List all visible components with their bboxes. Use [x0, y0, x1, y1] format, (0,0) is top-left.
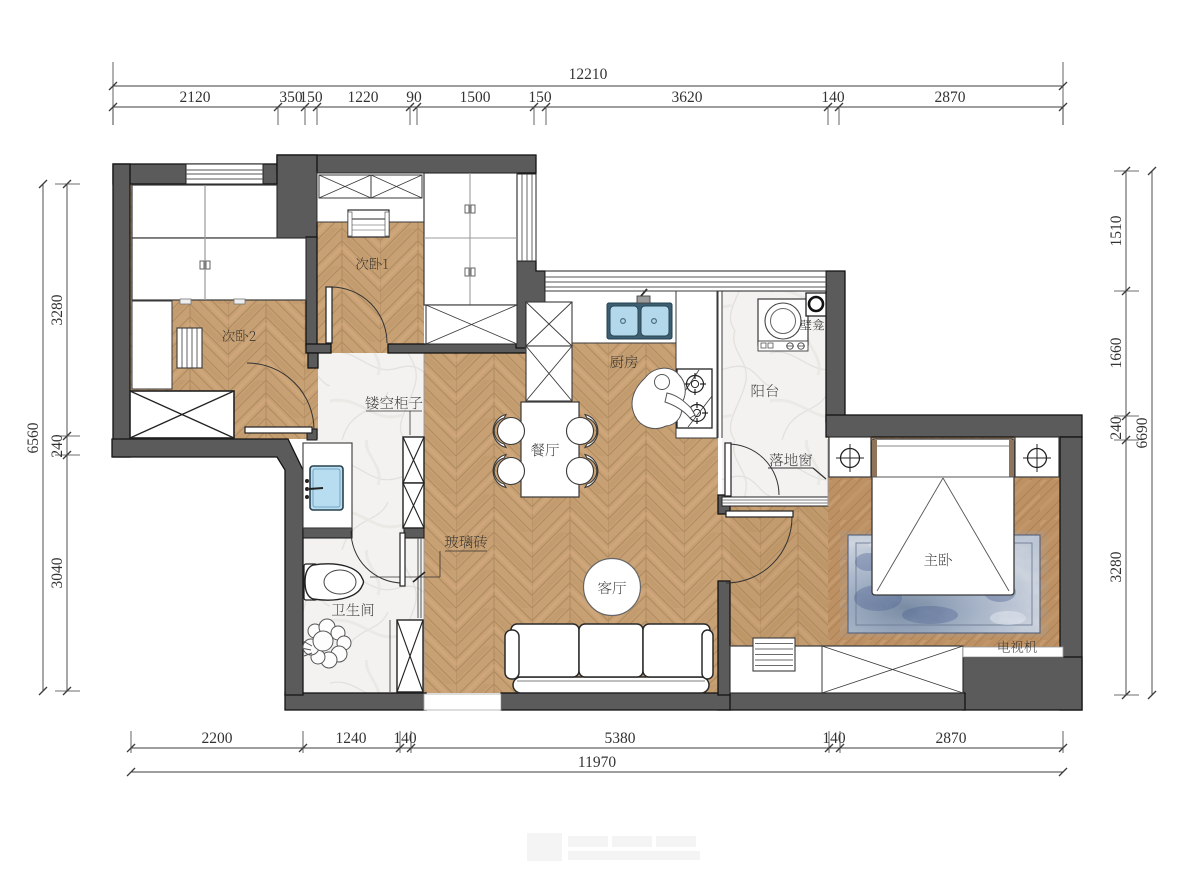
svg-text:240: 240	[1108, 416, 1125, 440]
svg-text:11970: 11970	[578, 754, 616, 771]
svg-text:6560: 6560	[25, 422, 42, 453]
svg-text:3040: 3040	[49, 557, 66, 588]
svg-text:3280: 3280	[1108, 551, 1125, 582]
svg-text:140: 140	[822, 730, 846, 747]
svg-text:1240: 1240	[336, 730, 367, 747]
svg-text:1500: 1500	[460, 89, 491, 106]
svg-text:3620: 3620	[672, 89, 703, 106]
svg-text:3280: 3280	[49, 294, 66, 325]
svg-text:150: 150	[528, 89, 552, 106]
svg-text:1660: 1660	[1108, 337, 1125, 368]
svg-text:1510: 1510	[1108, 215, 1125, 246]
svg-text:140: 140	[821, 89, 845, 106]
svg-text:90: 90	[406, 89, 422, 106]
svg-text:12210: 12210	[569, 66, 608, 83]
svg-text:240: 240	[49, 434, 66, 458]
svg-text:140: 140	[393, 730, 417, 747]
svg-text:2120: 2120	[180, 89, 211, 106]
svg-text:2200: 2200	[202, 730, 233, 747]
svg-text:2870: 2870	[935, 89, 966, 106]
svg-text:5380: 5380	[605, 730, 636, 747]
svg-text:150: 150	[299, 89, 323, 106]
svg-text:1220: 1220	[348, 89, 379, 106]
svg-text:6690: 6690	[1134, 417, 1151, 448]
svg-text:2870: 2870	[936, 730, 967, 747]
